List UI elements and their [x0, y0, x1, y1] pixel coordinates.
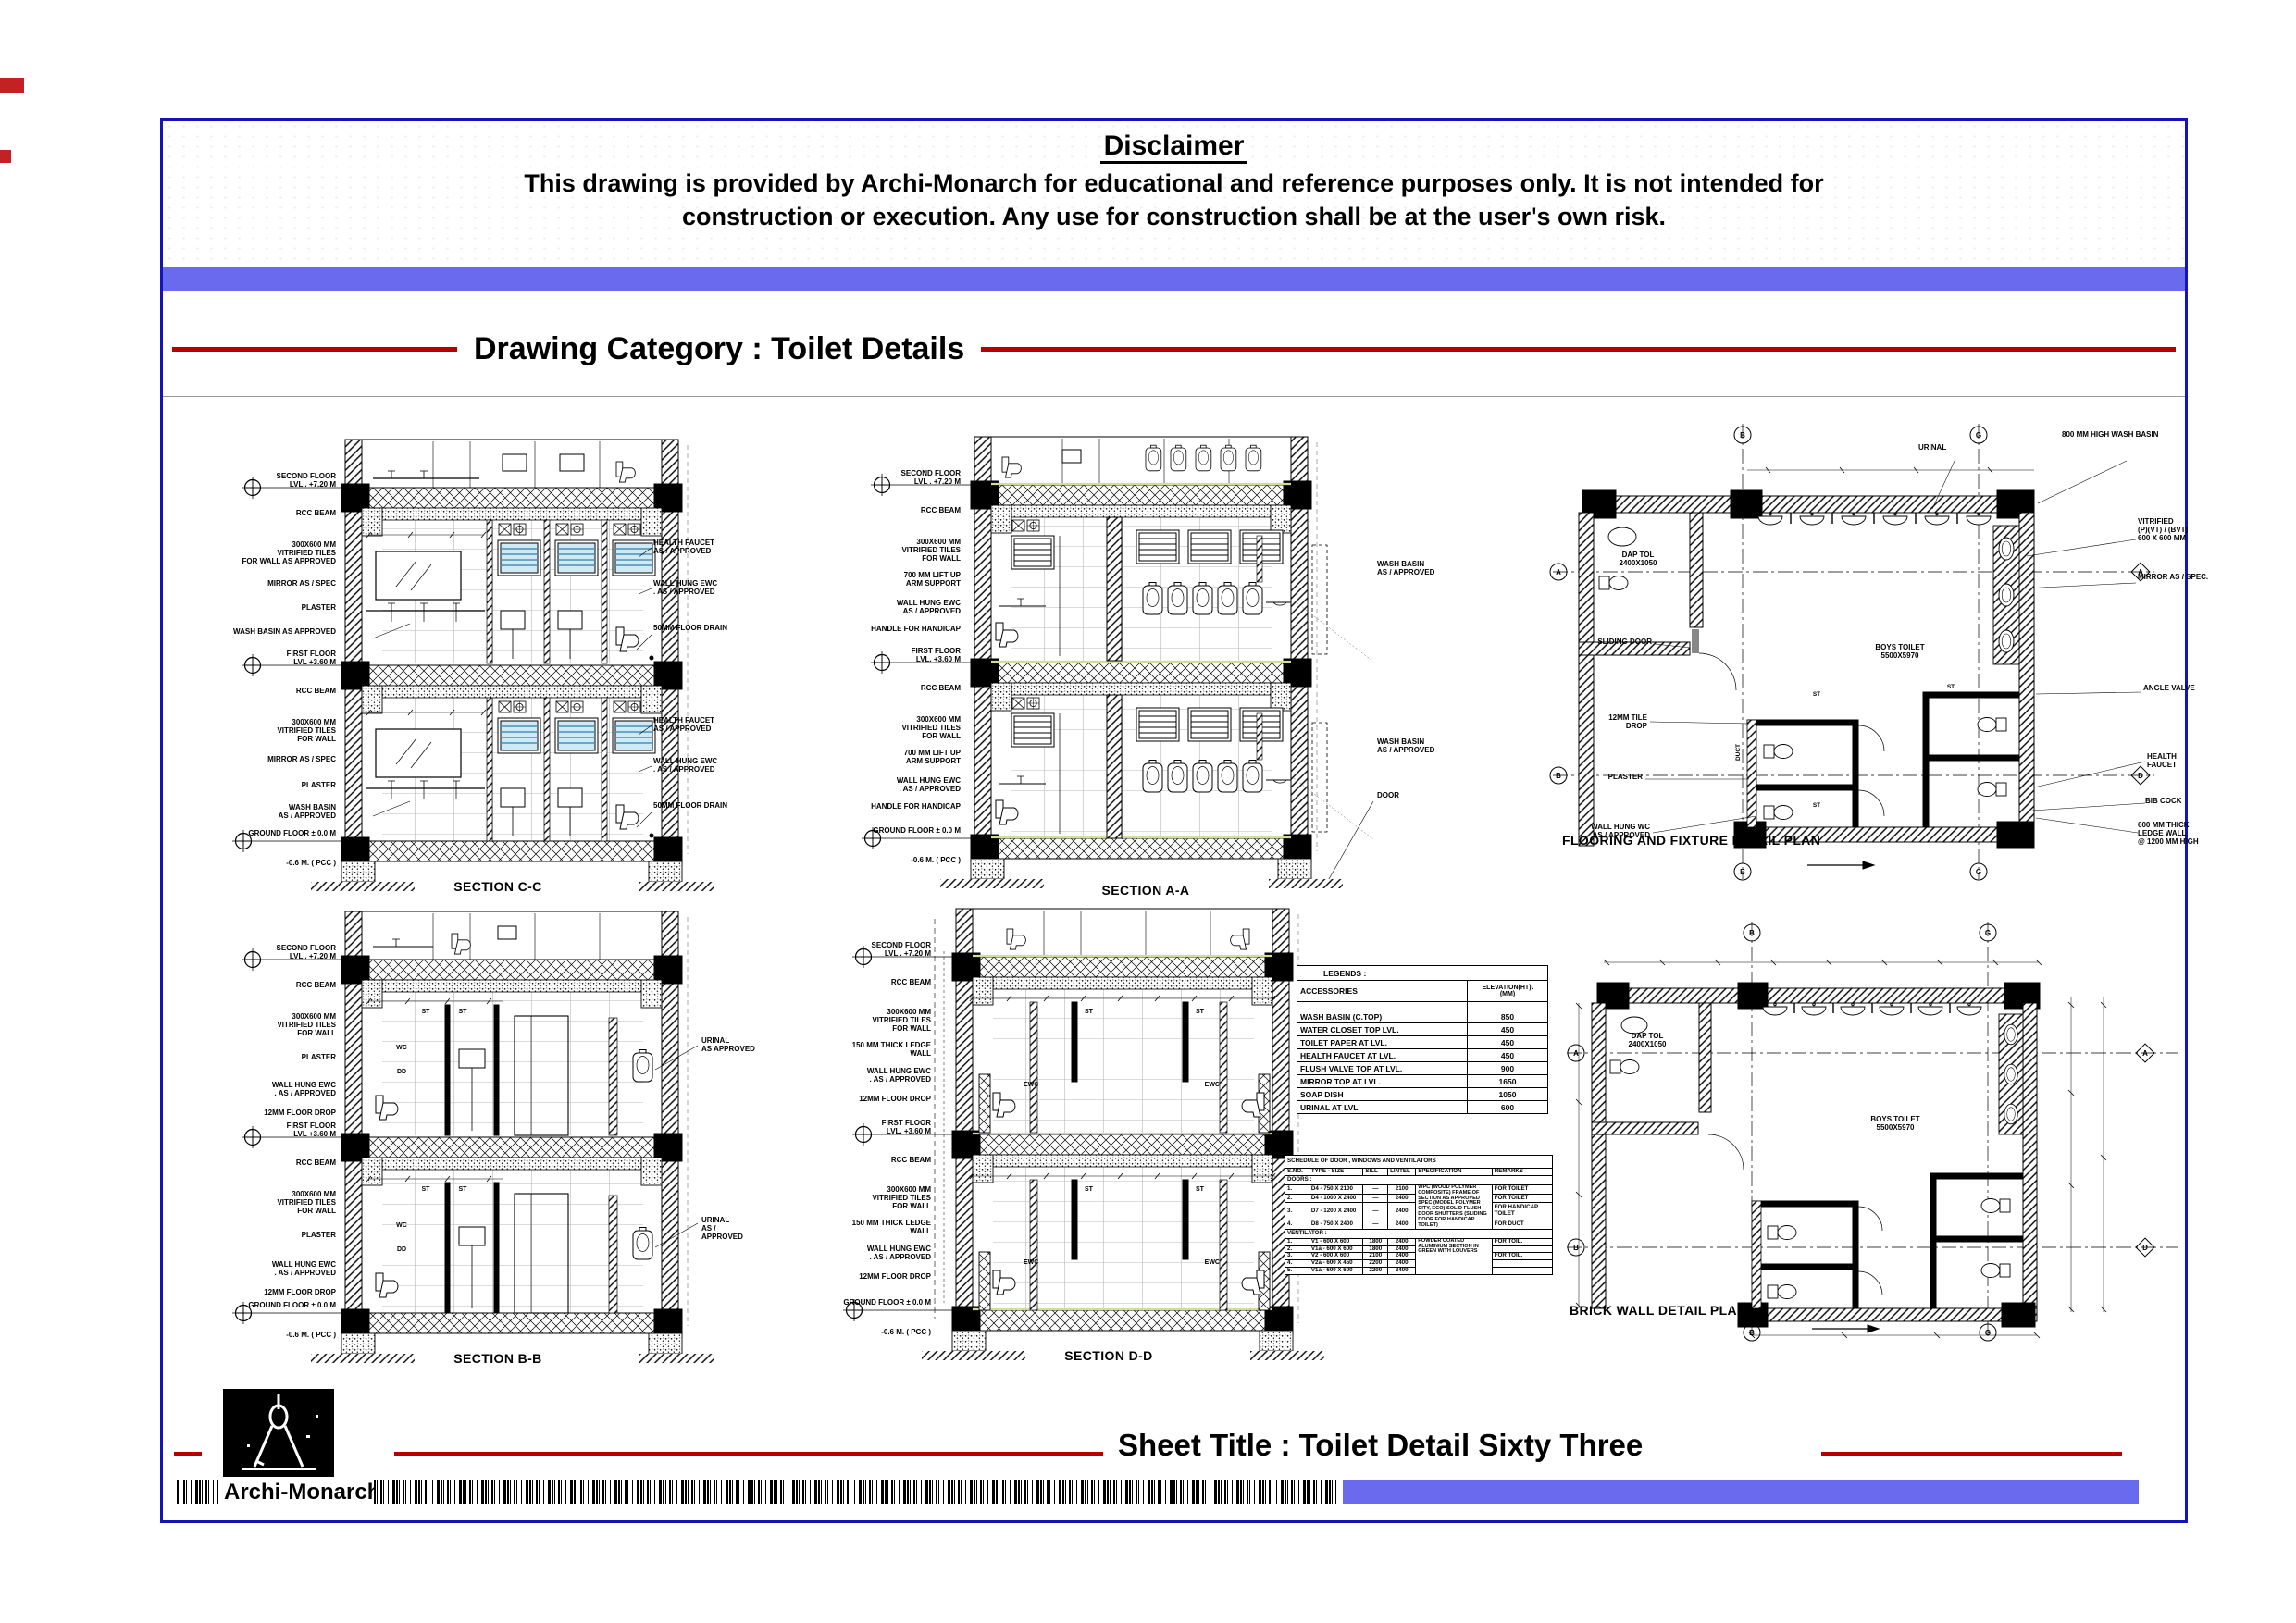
label-rcc-beam: RCC BEAM	[831, 1157, 931, 1165]
st-mark: ST	[1085, 1186, 1094, 1193]
label-handle-handicap: HANDLE FOR HANDICAP	[831, 626, 961, 634]
label-plaster: PLASTER	[220, 604, 336, 613]
schedule-header: LINTEL	[1388, 1169, 1416, 1176]
label-angle-valve: ANGLE VALVE	[2143, 685, 2217, 693]
brick-plan-caption: BRICK WALL DETAIL PLAN	[1570, 1303, 1903, 1318]
legend-row-name: MIRROR TOP AT LVL.	[1297, 1075, 1468, 1088]
dd-mark: DD	[397, 1069, 406, 1075]
legend-row-value: 450	[1468, 1049, 1548, 1062]
label-floor-drain: 50MM FLOOR DRAIN	[653, 625, 755, 633]
label-rcc-beam: RCC BEAM	[220, 982, 336, 990]
label-floor-drop: 12MM FLOOR DROP	[831, 1096, 931, 1104]
grid-bubble: G	[1976, 868, 1981, 876]
label-wall-hung-ewc: WALL HUNG EWC . AS / APPROVED	[220, 1261, 336, 1278]
label-first-floor: FIRST FLOOR LVL. +3.60 M	[831, 1120, 931, 1136]
panel-section-cc: SECOND FLOOR LVL . +7.20 M RCC BEAM 300X…	[220, 427, 757, 894]
legend-row-value: 850	[1468, 1010, 1548, 1023]
room-boys-toilet: BOYS TOILET 5500X5970	[1849, 644, 1951, 661]
label-tiles: 300X600 MM VITRIFIED TILES FOR WALL	[831, 539, 961, 564]
schedule-header: REMARKS	[1492, 1169, 1552, 1176]
label-first-floor: FIRST FLOOR LVL +3.60 M	[220, 1122, 336, 1139]
header-divider-bar	[163, 267, 2185, 291]
label-mirror: MIRROR AS / SPEC.	[2138, 574, 2221, 582]
schedule-header: SILL	[1363, 1169, 1388, 1176]
grid-bubble: G	[1976, 431, 1981, 440]
grid-bubble: B	[1749, 929, 1755, 937]
grid-bubble: B	[1740, 868, 1745, 876]
legend-row-name: WASH BASIN (C.TOP)	[1297, 1010, 1468, 1023]
label-bib-cock: BIB COCK	[2145, 798, 2210, 806]
label-handle-handicap: HANDLE FOR HANDICAP	[831, 803, 961, 811]
ewc-mark: EWC	[1024, 1082, 1038, 1088]
schedule-header: TYPE - SIZE	[1309, 1169, 1363, 1176]
section-aa-caption: SECTION A-A	[979, 883, 1312, 898]
sheet-frame: Disclaimer This drawing is provided by A…	[160, 118, 2188, 1523]
legends-table: LEGENDS : ACCESSORIES ELEVATION(HT). (MM…	[1297, 965, 1548, 1114]
label-tiles: 300X600 MM VITRIFIED TILES FOR WALL	[220, 1191, 336, 1216]
label-wall-hung-ewc: WALL HUNG EWC . AS / APPROVED	[831, 600, 961, 616]
label-rcc-beam: RCC BEAM	[220, 688, 336, 696]
label-pcc: -0.6 M. ( PCC )	[220, 1332, 336, 1340]
label-health-faucet: HEALTH FAUCET AS / APPROVED	[653, 717, 755, 734]
label-ledge-wall: 150 MM THICK LEDGE WALL	[831, 1220, 931, 1236]
category-row: Drawing Category : Toilet Details	[163, 323, 2185, 375]
schedule-doors-heading: DOORS :	[1285, 1175, 1553, 1184]
label-wash-basin: WASH BASIN AS / APPROVED	[1377, 561, 1474, 577]
legend-row-name: SOAP DISH	[1297, 1088, 1468, 1101]
label-second-floor: SECOND FLOOR LVL . +7.20 M	[831, 942, 931, 959]
legend-row-name: TOILET PAPER AT LVL.	[1297, 1036, 1468, 1049]
label-tiles: 300X600 MM VITRIFIED TILES FOR WALL	[831, 716, 961, 741]
legend-row-value: 1650	[1468, 1075, 1548, 1088]
st-mark: ST	[459, 1009, 468, 1015]
label-vitrified-tiles: VITRIFIED (P)(VT) / (BVT) 600 X 600 MM	[2138, 518, 2221, 543]
label-tiles: 300X600 MM VITRIFIED TILES FOR WALL	[831, 1009, 931, 1034]
label-pcc: -0.6 M. ( PCC )	[831, 857, 961, 865]
header-separator	[163, 396, 2185, 397]
label-tile-drop: 12MM TILE DROP	[1571, 714, 1647, 731]
label-floor-drop: 12MM FLOOR DROP	[220, 1109, 336, 1118]
scan-artifact	[0, 78, 24, 93]
label-ground-floor: GROUND FLOOR ± 0.0 M	[220, 1302, 336, 1310]
panel-schedule: SCHEDULE OF DOOR , WINDOWS AND VENTILATO…	[1285, 1155, 1553, 1301]
st-mark: ST	[459, 1186, 468, 1193]
barcode-left	[177, 1480, 218, 1504]
label-tiles: 300X600 MM VITRIFIED TILES FOR WALL	[831, 1186, 931, 1211]
label-rcc-beam: RCC BEAM	[220, 510, 336, 518]
schedule-vent-heading: VENTILATOR :	[1285, 1229, 1553, 1238]
label-first-floor: FIRST FLOOR LVL. +3.60 M	[831, 648, 961, 664]
label-pcc: -0.6 M. ( PCC )	[220, 860, 336, 868]
title-rule-dash	[174, 1452, 202, 1456]
section-cc-caption: SECTION C-C	[341, 879, 655, 894]
grid-bubble: B	[1573, 1244, 1579, 1252]
category-rule-right	[981, 347, 2176, 352]
label-rcc-beam: RCC BEAM	[220, 1159, 336, 1168]
label-wash-basin: WASH BASIN AS / APPROVED	[1377, 738, 1474, 755]
legend-row-value: 450	[1468, 1023, 1548, 1036]
legend-row-value: 1050	[1468, 1088, 1548, 1101]
label-sliding-door: SLIDING DOOR	[1567, 638, 1652, 647]
footer-bar	[1343, 1480, 2139, 1504]
grid-bubble: G	[1985, 1329, 1991, 1337]
label-plaster: PLASTER	[220, 782, 336, 790]
room-dap-tol: DAP TOL 2400X1050	[1610, 1033, 1684, 1049]
label-ground-floor: GROUND FLOOR ± 0.0 M	[831, 1299, 931, 1307]
label-ledge-wall: 600 MM THICK LEDGE WALL @ 1200 MM HIGH	[2138, 822, 2216, 847]
vent-spec: POWDER COATED ALUMINIUM SECTION IN GREEN…	[1416, 1238, 1493, 1274]
wc-mark: WC	[396, 1222, 407, 1229]
schedule-header: S.NO.	[1285, 1169, 1309, 1176]
section-bb-caption: SECTION B-B	[341, 1351, 655, 1366]
panel-legends: LEGENDS : ACCESSORIES ELEVATION(HT). (MM…	[1297, 965, 1548, 1121]
st-mark: ST	[422, 1009, 431, 1015]
legend-row-name: HEALTH FAUCET AT LVL.	[1297, 1049, 1468, 1062]
panel-brick-plan: B G A B A D B G DAP TOL 2400X1050 BOYS T…	[1553, 914, 2191, 1349]
category-rule-left	[172, 347, 457, 352]
legend-row-value: 900	[1468, 1062, 1548, 1075]
st-mark: ST	[1196, 1009, 1205, 1015]
label-floor-drop: 12MM FLOOR DROP	[831, 1273, 931, 1282]
label-tiles: 300X600 MM VITRIFIED TILES FOR WALL	[220, 1013, 336, 1038]
legend-row-value: 450	[1468, 1036, 1548, 1049]
label-plaster: PLASTER	[220, 1232, 336, 1240]
label-door: DOOR	[1377, 792, 1474, 800]
title-rule-right	[1821, 1452, 2122, 1456]
flooring-plan-caption: FLOORING AND FIXTURE DETAIL PLAN	[1562, 833, 1951, 848]
label-mirror: MIRROR AS / SPEC	[220, 756, 336, 764]
label-lift-up-arm: 700 MM LIFT UP ARM SUPPORT	[831, 572, 961, 588]
title-rule-left	[394, 1452, 1103, 1456]
label-wall-hung-ewc: WALL HUNG EWC . AS / APPROVED	[220, 1082, 336, 1098]
disclaimer-line2: construction or execution. Any use for c…	[163, 203, 2185, 231]
schedule-table: SCHEDULE OF DOOR , WINDOWS AND VENTILATO…	[1285, 1155, 1553, 1275]
grid-bubble: A	[1556, 568, 1561, 576]
brand-name: Archi-Monarch	[224, 1480, 380, 1505]
label-plaster: PLASTER	[1576, 774, 1643, 782]
st-mark: ST	[1196, 1186, 1205, 1193]
ewc-mark: EWC	[1024, 1259, 1038, 1266]
label-high-wash-basin: 800 MM HIGH WASH BASIN	[2062, 431, 2180, 440]
duct-label: DUCT	[1735, 744, 1742, 761]
label-wall-hung-ewc: WALL HUNG EWC . AS / APPROVED	[831, 777, 961, 794]
disclaimer-title: Disclaimer	[163, 130, 2185, 162]
drawing-sheet: Disclaimer This drawing is provided by A…	[0, 0, 2296, 1623]
label-floor-drop: 12MM FLOOR DROP	[220, 1289, 336, 1297]
grid-bubble: D	[2142, 1244, 2148, 1252]
panel-flooring-plan: B G A B A D B G ST ST ST DUCT DAP TOL 24…	[1534, 415, 2182, 891]
doors-spec: WPC (WOOD POLYMER COMPOSITE) FRAME OF SE…	[1416, 1184, 1493, 1229]
grid-bubble: G	[1985, 929, 1991, 937]
schedule-header: SPECIFICATION	[1416, 1169, 1493, 1176]
schedule-title: SCHEDULE OF DOOR , WINDOWS AND VENTILATO…	[1285, 1156, 1553, 1169]
legends-col-elevation: ELEVATION(HT). (MM)	[1468, 981, 1548, 1002]
label-first-floor: FIRST FLOOR LVL +3.60 M	[220, 650, 336, 667]
label-plaster: PLASTER	[220, 1054, 336, 1062]
label-tiles: 300X600 MM VITRIFIED TILES FOR WALL AS A…	[220, 541, 336, 566]
st-mark: ST	[1085, 1009, 1094, 1015]
barcode-main	[374, 1480, 1336, 1504]
brand-logo	[223, 1389, 334, 1477]
ewc-mark: EWC	[1205, 1259, 1220, 1266]
st-mark: ST	[1947, 684, 1955, 690]
label-urinal: URINAL AS APPROVED	[701, 1037, 757, 1054]
scan-artifact	[0, 150, 11, 163]
wc-mark: WC	[396, 1045, 407, 1051]
dd-mark: DD	[397, 1246, 406, 1253]
category-title: Drawing Category : Toilet Details	[457, 331, 981, 367]
label-second-floor: SECOND FLOOR LVL . +7.20 M	[220, 473, 336, 489]
label-health-faucet: HEALTH FAUCET AS / APPROVED	[653, 539, 755, 556]
label-ground-floor: GROUND FLOOR ± 0.0 M	[220, 830, 336, 838]
label-lift-up-arm: 700 MM LIFT UP ARM SUPPORT	[831, 750, 961, 766]
legends-col-accessories: ACCESSORIES	[1297, 981, 1468, 1002]
section-dd-caption: SECTION D-D	[951, 1348, 1266, 1363]
panel-section-bb: ST ST WC DD ST ST WC DD SECOND FLOOR LVL…	[220, 898, 757, 1366]
label-pcc: -0.6 M. ( PCC )	[831, 1329, 931, 1337]
grid-bubble: B	[1749, 1329, 1755, 1337]
label-floor-drain: 50MM FLOOR DRAIN	[653, 802, 755, 811]
grid-bubble: A	[2142, 1049, 2148, 1058]
st-mark: ST	[1813, 691, 1820, 698]
legend-row-name: WATER CLOSET TOP LVL.	[1297, 1023, 1468, 1036]
ewc-mark: EWC	[1205, 1082, 1220, 1088]
label-urinal: URINAL AS / APPROVED	[701, 1217, 757, 1242]
room-boys-toilet: BOYS TOILET 5500X5970	[1844, 1116, 1946, 1133]
label-second-floor: SECOND FLOOR LVL . +7.20 M	[220, 945, 336, 961]
label-rcc-beam: RCC BEAM	[831, 979, 931, 987]
grid-bubble: D	[2138, 772, 2143, 780]
st-mark: ST	[422, 1186, 431, 1193]
legend-row-name: FLUSH VALVE TOP AT LVL.	[1297, 1062, 1468, 1075]
st-mark: ST	[1813, 802, 1820, 809]
legends-title: LEGENDS :	[1297, 966, 1548, 981]
label-tiles: 300X600 MM VITRIFIED TILES FOR WALL	[220, 719, 336, 744]
panel-section-aa: SECOND FLOOR LVL . +7.20 M RCC BEAM 300X…	[831, 424, 1479, 900]
label-ground-floor: GROUND FLOOR ± 0.0 M	[831, 827, 961, 836]
label-second-floor: SECOND FLOOR LVL . +7.20 M	[831, 470, 961, 487]
grid-bubble: B	[1740, 431, 1745, 440]
label-wall-hung-ewc: WALL HUNG EWC . AS / APPROVED	[653, 580, 755, 597]
label-rcc-beam: RCC BEAM	[831, 507, 961, 515]
disclaimer-line1: This drawing is provided by Archi-Monarc…	[163, 169, 2185, 198]
grid-bubble: B	[1556, 772, 1561, 780]
legend-row-name: URINAL AT LVL	[1297, 1101, 1468, 1114]
room-dap-tol: DAP TOL 2400X1050	[1601, 551, 1675, 568]
label-mirror: MIRROR AS / SPEC	[220, 580, 336, 588]
label-wall-hung-ewc: WALL HUNG EWC . AS / APPROVED	[653, 758, 755, 774]
label-health-faucet: HEALTH FAUCET	[2147, 753, 2203, 770]
legend-row-value: 600	[1468, 1101, 1548, 1114]
label-wash-basin: WASH BASIN AS / APPROVED	[220, 804, 336, 821]
label-wash-basin: WASH BASIN AS APPROVED	[220, 628, 336, 637]
label-wall-hung-ewc: WALL HUNG EWC . AS / APPROVED	[831, 1068, 931, 1084]
label-urinal: URINAL	[1918, 444, 1974, 452]
label-ledge-wall: 150 MM THICK LEDGE WALL	[831, 1042, 931, 1059]
sheet-title: Sheet Title : Toilet Detail Sixty Three	[1118, 1428, 1643, 1463]
label-rcc-beam: RCC BEAM	[831, 685, 961, 693]
grid-bubble: A	[1573, 1049, 1579, 1058]
label-wall-hung-ewc: WALL HUNG EWC . AS / APPROVED	[831, 1245, 931, 1262]
